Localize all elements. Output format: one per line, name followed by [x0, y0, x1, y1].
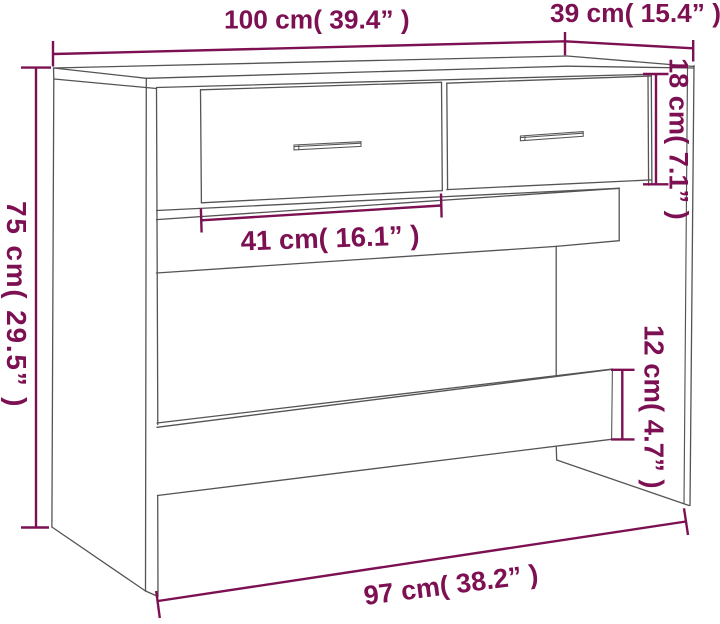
svg-text:39 cm( 15.4” ): 39 cm( 15.4” )	[550, 0, 720, 28]
svg-text:12 cm( 4.7” ): 12 cm( 4.7” )	[639, 325, 670, 489]
svg-text:75 cm( 29.5” ): 75 cm( 29.5” )	[1, 201, 32, 408]
svg-text:18 cm( 7.1” ): 18 cm( 7.1” )	[664, 58, 695, 220]
svg-text:100 cm( 39.4” ): 100 cm( 39.4” )	[224, 5, 410, 35]
svg-text:41 cm( 16.1” ): 41 cm( 16.1” )	[240, 219, 420, 256]
